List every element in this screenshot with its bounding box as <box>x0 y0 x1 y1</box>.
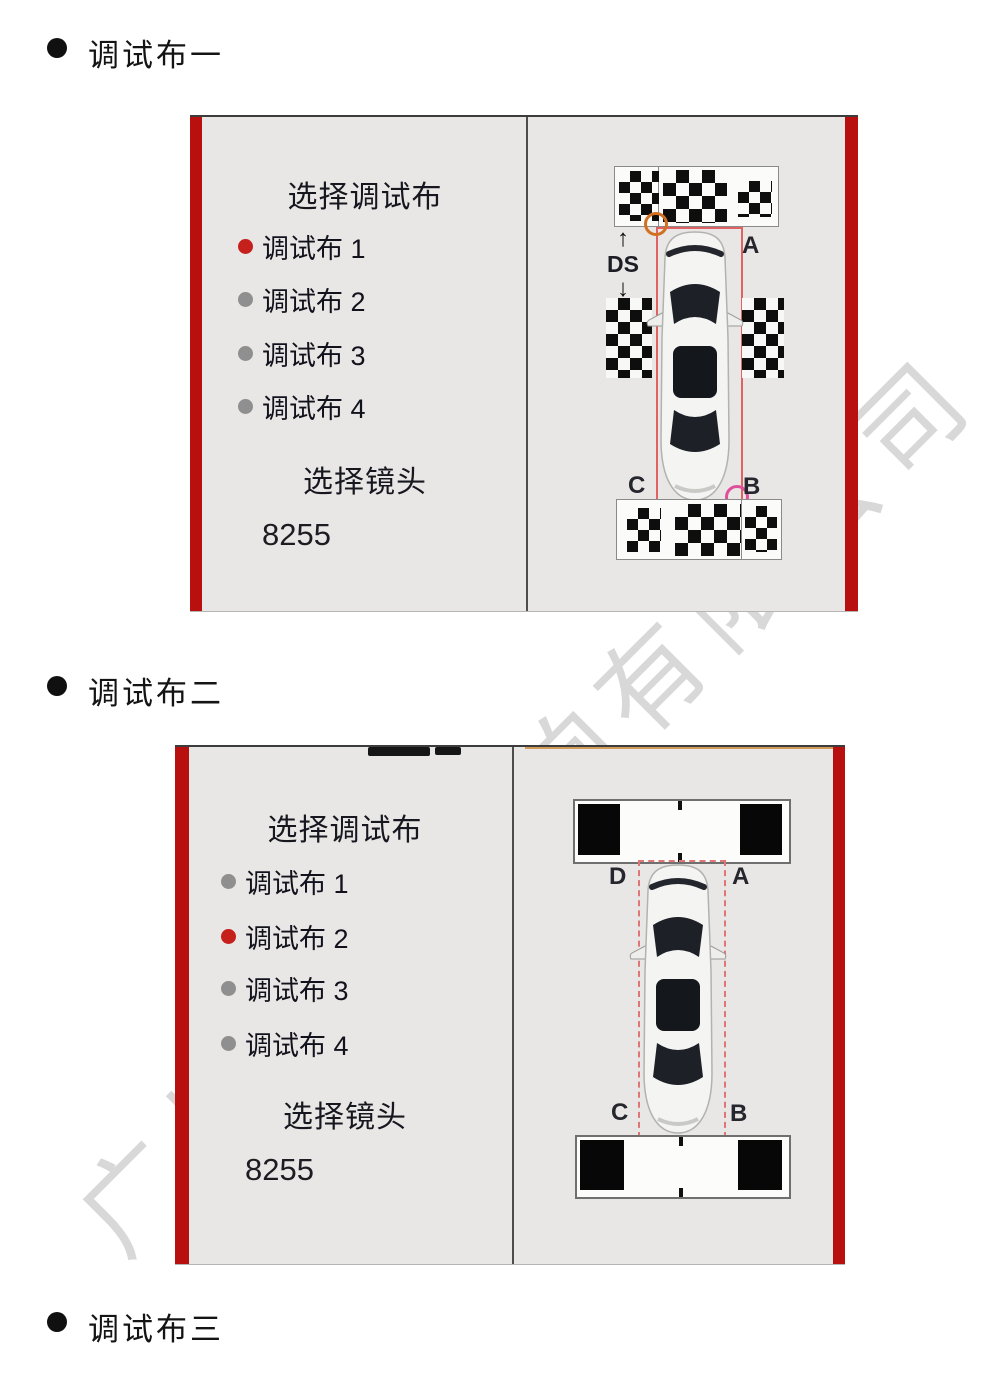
cloth-option-2[interactable]: 调试布 2 <box>221 920 349 952</box>
checkerboard-pattern <box>627 508 661 552</box>
corner-label-b: B <box>730 1100 747 1128</box>
center-tick <box>679 1137 683 1146</box>
corner-label-a: A <box>732 863 749 891</box>
front-marker-board <box>573 799 791 864</box>
document-page: 广州汽车音响有限公司 调试布一 选择调试布 调试布 1 调试布 2 调试布 3 … <box>0 0 1000 1400</box>
bullet-icon <box>47 1312 67 1332</box>
bullet-icon <box>47 38 67 58</box>
panel-divider <box>512 747 514 1264</box>
rear-checker-strip <box>616 499 782 560</box>
lens-value[interactable]: 8255 <box>245 1152 314 1188</box>
corner-label-a: A <box>742 232 759 260</box>
center-tick <box>678 801 682 810</box>
black-square-marker <box>738 1140 782 1190</box>
corner-label-c: C <box>611 1099 628 1127</box>
right-red-bar <box>845 117 858 611</box>
cropped-text-fragment <box>435 747 461 755</box>
black-square-marker <box>580 1140 624 1190</box>
right-red-bar <box>833 747 845 1264</box>
cloth-option-label: 调试布 2 <box>245 917 349 956</box>
cloth-option-3[interactable]: 调试布 3 <box>221 972 349 1004</box>
corner-label-d: D <box>609 863 626 891</box>
cloth-option-4[interactable]: 调试布 4 <box>221 1027 349 1059</box>
cloth-option-3[interactable]: 调试布 3 <box>238 337 366 369</box>
checkerboard-pattern <box>738 181 772 217</box>
bullet-label-cloth-3: 调试布三 <box>88 1304 224 1349</box>
ds-label: DS <box>600 251 646 277</box>
rear-marker-board <box>575 1135 791 1199</box>
screenshot-calibration-cloth-2: 选择调试布 调试布 1 调试布 2 调试布 3 调试布 4 选择镜头 8255 <box>175 745 845 1265</box>
cloth-option-label: 调试布 1 <box>245 862 349 901</box>
radio-dot-icon <box>238 239 253 254</box>
corner-label-c: C <box>628 472 645 500</box>
ds-distance-indicator: ↑ DS ↓ <box>600 227 646 301</box>
black-square-marker <box>578 804 620 855</box>
right-side-checkerboard <box>742 298 784 378</box>
radio-dot-icon <box>238 399 253 414</box>
screenshot-calibration-cloth-1: 选择调试布 调试布 1 调试布 2 调试布 3 调试布 4 选择镜头 8255 … <box>190 115 858 612</box>
select-lens-title: 选择镜头 <box>215 457 515 501</box>
radio-dot-icon <box>238 292 253 307</box>
radio-dot-icon <box>221 874 236 889</box>
front-checker-strip <box>614 166 779 227</box>
cloth-option-2[interactable]: 调试布 2 <box>238 283 366 315</box>
corner-marker-icon <box>644 212 668 236</box>
top-edge-highlight <box>525 747 833 749</box>
left-red-bar <box>190 117 202 611</box>
car-top-view-icon <box>643 228 747 506</box>
bullet-label-cloth-2: 调试布二 <box>88 668 224 713</box>
cloth-option-label: 调试布 2 <box>262 280 366 319</box>
corner-label-b: B <box>743 473 760 501</box>
radio-dot-icon <box>221 1036 236 1051</box>
center-tick <box>679 1188 683 1197</box>
select-cloth-title: 选择调试布 <box>215 172 515 216</box>
left-red-bar <box>175 747 189 1264</box>
radio-dot-icon <box>221 929 236 944</box>
select-lens-title: 选择镜头 <box>195 1092 495 1136</box>
cloth-option-label: 调试布 4 <box>245 1024 349 1063</box>
cloth-option-label: 调试布 1 <box>262 227 366 266</box>
bullet-icon <box>47 676 67 696</box>
car-top-view-icon <box>626 861 730 1139</box>
lens-value[interactable]: 8255 <box>262 517 331 553</box>
cloth-option-1[interactable]: 调试布 1 <box>221 865 349 897</box>
cloth-option-1[interactable]: 调试布 1 <box>238 230 366 262</box>
checkerboard-pattern <box>745 506 777 552</box>
select-cloth-title: 选择调试布 <box>195 805 495 849</box>
radio-dot-icon <box>221 981 236 996</box>
checkerboard-pattern <box>663 170 727 223</box>
cloth-option-label: 调试布 3 <box>245 969 349 1008</box>
cloth-option-label: 调试布 3 <box>262 334 366 373</box>
panel-divider <box>526 117 528 611</box>
cropped-text-fragment <box>368 747 430 756</box>
arrow-up-icon: ↑ <box>600 227 646 251</box>
checkerboard-pattern <box>675 504 741 556</box>
radio-dot-icon <box>238 346 253 361</box>
strip-divider-line <box>741 500 742 559</box>
black-square-marker <box>740 804 782 855</box>
cloth-option-label: 调试布 4 <box>262 387 366 426</box>
bullet-label-cloth-1: 调试布一 <box>88 30 224 75</box>
cloth-option-4[interactable]: 调试布 4 <box>238 390 366 422</box>
